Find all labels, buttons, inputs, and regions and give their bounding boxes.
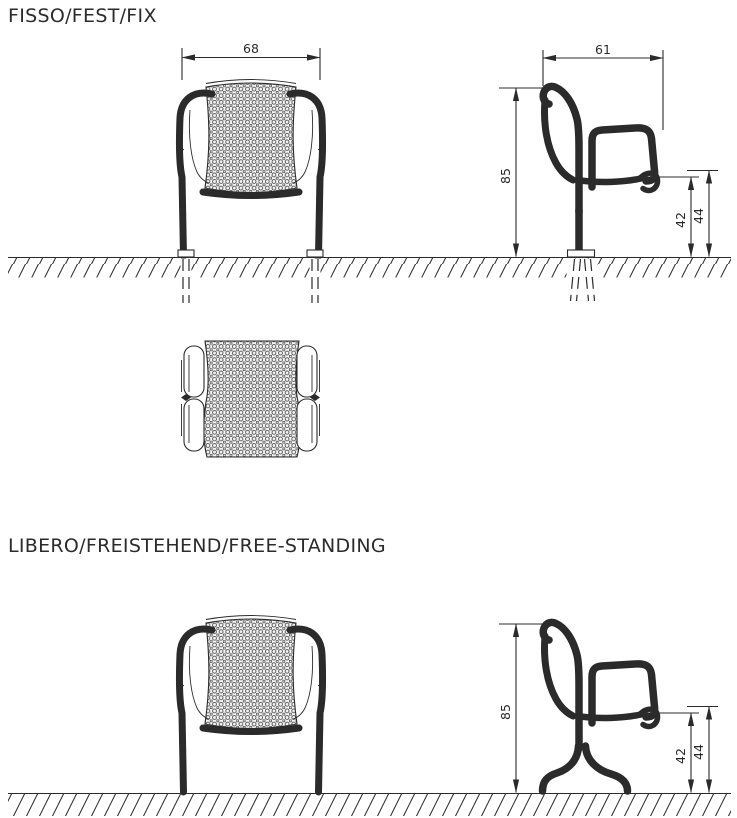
chair-technical-drawing: FISSO/FEST/FIX 68 61 85 42 [0,0,737,818]
ground-hatch [8,258,731,278]
pedestal-foot-rear [543,746,579,791]
ground-line-free-standing [8,794,731,817]
ground-line-fixed [8,258,731,278]
side-view-fixed [543,86,657,257]
pedestal-foot-front [586,746,628,791]
dim-overall-width: 68 [182,41,320,80]
armrest-plan-left-upper [184,346,204,397]
armrest-plan-right-lower [297,399,317,451]
dim-text-seat-front: 44 [691,744,706,760]
dim-text-height: 85 [498,704,513,720]
anchor-clearance [181,259,192,304]
dim-text-height: 85 [498,168,513,184]
dim-text-seat-rear: 42 [673,748,688,764]
dim-text-depth: 61 [595,42,611,57]
dim-backrest-height-free: 85 [498,624,546,793]
technical-drawing-page: FISSO/FEST/FIX 68 61 85 42 [0,0,737,818]
seat-mesh-plan [204,341,300,457]
ground-hatch [8,794,731,816]
foot-plate-side [568,250,595,257]
side-view-free-standing [543,622,658,791]
plan-view [181,341,320,457]
dim-text-seat-rear: 42 [673,212,688,228]
dim-text-seat-front: 44 [691,208,706,224]
anchor-clearance [310,259,321,304]
foot-plate-left [178,250,194,257]
dim-text-width: 68 [243,41,259,56]
dim-seat-height-front-fixed: 44 [687,171,718,257]
armrest-plan-left-lower [184,399,204,451]
section-title-free-standing: LIBERO/FREISTEHEND/FREE-STANDING [8,535,386,557]
dim-seat-height-front-free: 44 [687,707,718,793]
section-title-fixed: FISSO/FEST/FIX [8,5,157,27]
foot-plate-right [307,250,323,257]
front-view-free-standing [177,616,326,793]
armrest-plan-right-upper [297,346,317,397]
front-view-fixed [177,80,326,258]
dim-backrest-height-fixed: 85 [498,88,546,257]
